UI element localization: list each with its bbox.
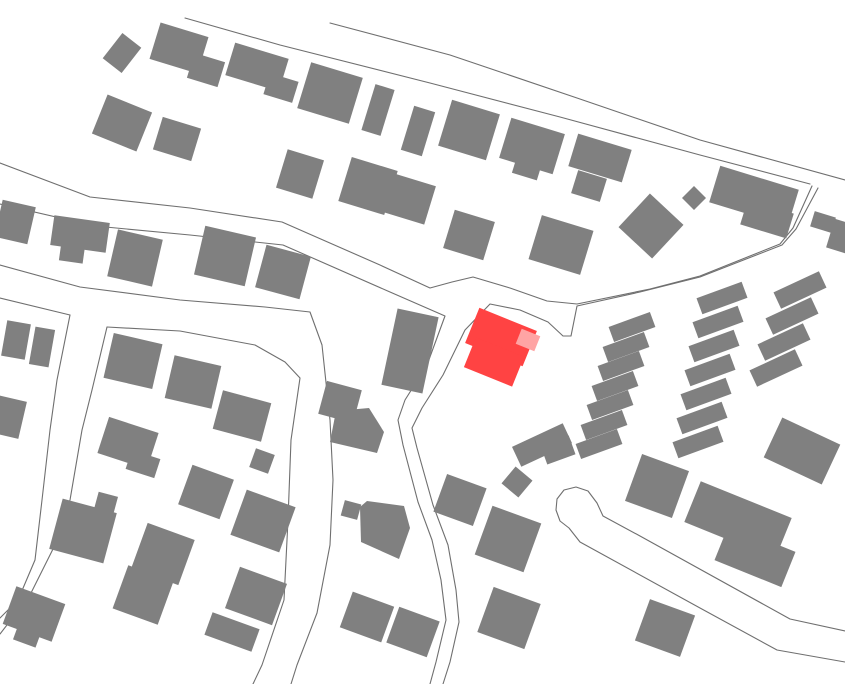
building-footprint (381, 309, 438, 394)
building-footprint (276, 149, 324, 198)
building-footprint (1, 320, 31, 360)
building-footprint (225, 567, 287, 625)
building-footprint (682, 186, 706, 210)
building-footprint (263, 73, 298, 103)
building-footprint (297, 62, 363, 124)
building-footprint (529, 215, 594, 275)
building-footprint (689, 330, 740, 362)
building-footprint (401, 106, 435, 156)
building-footprint (685, 354, 736, 386)
building-footprint (330, 408, 384, 453)
road-outline-lower-road-west-stub (0, 298, 70, 315)
building-footprint (194, 226, 256, 286)
building-footprint (255, 245, 311, 299)
building-footprint (230, 490, 295, 553)
building-footprint (625, 454, 689, 518)
building-footprint (213, 390, 272, 442)
building-footprint (677, 402, 728, 434)
building-footprint (693, 306, 744, 338)
building-footprint (126, 450, 161, 478)
building-footprint (107, 229, 163, 286)
building-footprint (165, 355, 222, 409)
building-footprint (635, 599, 695, 657)
building-footprint (59, 242, 85, 263)
building-footprint (153, 117, 201, 161)
building-footprint (443, 210, 495, 261)
building-footprint (764, 418, 841, 485)
building-footprint (29, 327, 55, 368)
building-footprint (673, 426, 724, 458)
building-footprint (92, 95, 152, 152)
building-footprint (619, 194, 684, 259)
building-footprint (502, 467, 533, 498)
building-footprint (0, 395, 27, 439)
building-footprint (178, 465, 234, 520)
building-footprint (0, 200, 36, 245)
building-footprint (438, 100, 500, 161)
highlight-layer (464, 308, 540, 387)
buildings-layer (0, 23, 845, 658)
building-footprint (360, 501, 410, 559)
building-footprint (341, 500, 362, 520)
building-footprint (103, 33, 142, 73)
building-footprint (386, 607, 439, 657)
building-footprint (249, 448, 275, 474)
building-footprint (361, 84, 394, 136)
building-footprint (681, 378, 732, 410)
building-footprint (475, 506, 542, 573)
building-footprint (340, 592, 394, 643)
site-plan-map (0, 0, 845, 684)
building-footprint (104, 333, 163, 389)
map-canvas (0, 0, 845, 684)
road-outline-top-road-lower-edge (185, 18, 810, 184)
building-footprint (433, 474, 486, 526)
building-footprint (477, 587, 540, 649)
building-footprint (697, 282, 748, 314)
building-footprint (204, 612, 259, 652)
building-footprint (512, 423, 572, 467)
